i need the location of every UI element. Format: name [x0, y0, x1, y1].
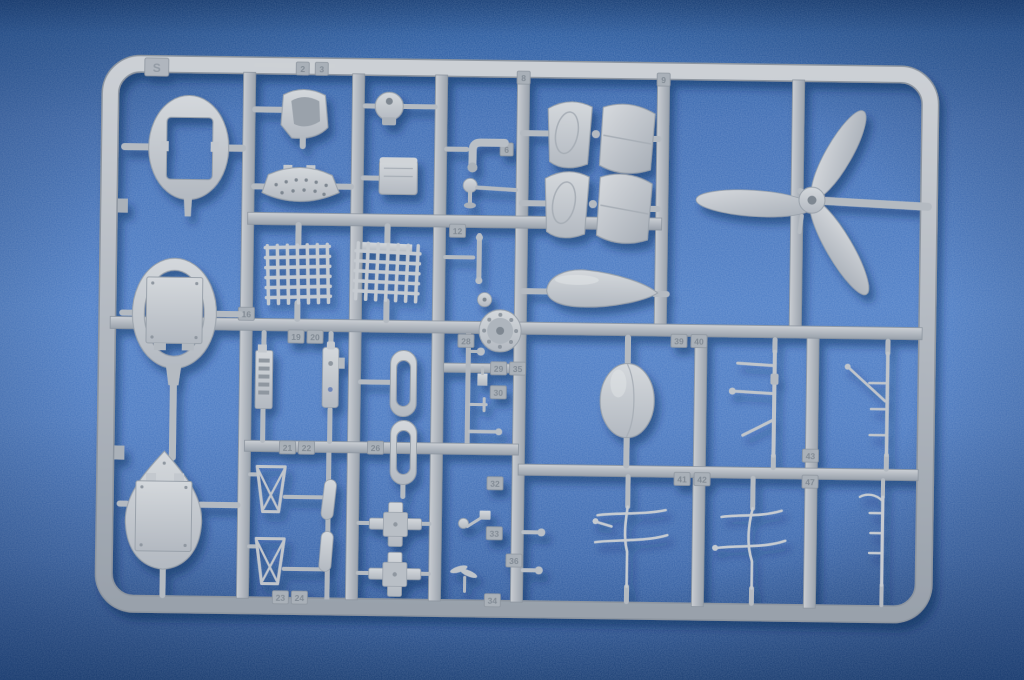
part-number-label: 3: [319, 64, 324, 74]
engine-crankcase-front: [479, 310, 522, 353]
part-number-label: 36: [509, 556, 519, 566]
part-number-label: 35: [513, 364, 523, 374]
part-number-label: 43: [806, 451, 816, 461]
egg-shaped-tank: [600, 363, 655, 438]
part-number-label: 23: [276, 593, 286, 603]
radiator-mesh-screen-right: [354, 242, 421, 302]
part-number-tag: 19: [288, 330, 304, 343]
rail-stub: [114, 445, 124, 459]
part-number-tag: 34: [484, 594, 500, 607]
part-number-tag: 20: [307, 330, 323, 343]
part-number-tag: 41: [674, 472, 690, 485]
part-number-tag: 47: [802, 475, 818, 488]
part-number-tag: 30: [490, 386, 506, 399]
part-number-label: 21: [283, 443, 293, 453]
part-number-tag: 40: [691, 335, 707, 348]
part-number-tag: 26: [367, 441, 383, 454]
equipment-box: [379, 157, 418, 195]
instrument-panel-left: [255, 344, 273, 408]
part-number-label: 20: [310, 332, 320, 342]
part-number-tag: 36: [506, 554, 522, 567]
part-number-tag: 42: [694, 473, 710, 486]
part-number-tag: 23: [272, 591, 288, 604]
part-number-label: 8: [521, 73, 526, 83]
part-number-label: 2: [300, 64, 305, 74]
part-number-tag: 39: [671, 334, 687, 347]
part-number-tag: 12: [449, 224, 465, 237]
part-number-label: 22: [302, 443, 312, 453]
part-number-tag: 28: [458, 334, 474, 347]
part-number-tag: 8: [517, 71, 530, 84]
part-number-tag: 9: [657, 73, 670, 86]
part-number-label: 39: [674, 336, 684, 346]
part-number-tag: 2: [296, 62, 309, 75]
part-number-label: 30: [493, 388, 503, 398]
part-number-tag: 21: [279, 441, 295, 454]
part-number-label: 28: [461, 336, 471, 346]
sprue-letter-tab: S: [145, 58, 169, 76]
part-number-label: 24: [295, 593, 305, 603]
part-number-label: 12: [453, 226, 463, 236]
sprue-photo-canvas: S 23896121619202829353039402122264142434…: [0, 0, 1024, 680]
photo-of-model-sprue: S 23896121619202829353039402122264142434…: [0, 0, 1024, 680]
part-number-tag: 35: [510, 362, 526, 375]
part-number-label: 34: [488, 596, 498, 606]
part-number-label: 47: [805, 477, 815, 487]
part-number-label: 29: [494, 364, 504, 374]
part-number-label: 32: [490, 479, 500, 489]
part-number-tag: 29: [491, 362, 507, 375]
part-number-tag: 33: [486, 527, 502, 540]
part-number-label: 42: [697, 475, 707, 485]
part-number-label: 40: [694, 337, 704, 347]
part-number-label: 26: [371, 443, 381, 453]
part-number-tag: 24: [291, 591, 307, 604]
part-number-tag: 32: [487, 477, 503, 490]
part-number-label: 33: [489, 529, 499, 539]
part-number-tag: 43: [802, 449, 818, 462]
part-number-label: 9: [661, 75, 666, 85]
sprue-letter: S: [153, 61, 161, 75]
part-number-tag: 22: [298, 441, 314, 454]
part-number-label: 41: [677, 475, 687, 485]
part-number-tag: 3: [315, 62, 328, 75]
part-number-label: 19: [291, 332, 301, 342]
rail-stub: [118, 198, 128, 212]
